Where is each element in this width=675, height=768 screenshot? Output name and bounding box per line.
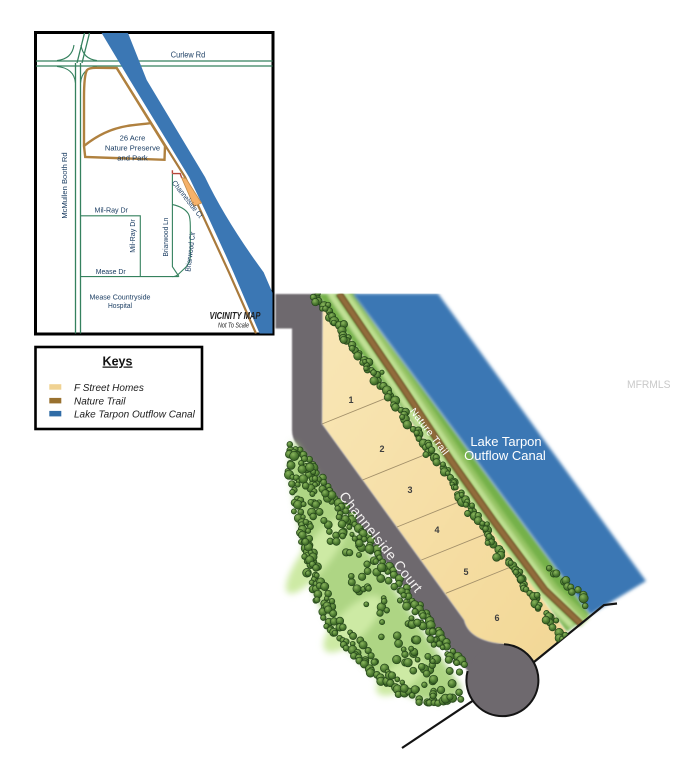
svg-text:MFRMLS: MFRMLS xyxy=(627,379,671,391)
svg-text:Mil-Ray Dr: Mil-Ray Dr xyxy=(95,206,129,215)
svg-text:Lake Tarpon: Lake Tarpon xyxy=(470,434,541,449)
svg-text:Outflow Canal: Outflow Canal xyxy=(464,448,546,463)
svg-text:2: 2 xyxy=(379,444,384,454)
svg-text:1: 1 xyxy=(348,395,353,405)
svg-text:26 Acre: 26 Acre xyxy=(120,134,146,143)
svg-text:Keys: Keys xyxy=(103,355,133,369)
svg-text:VICINITY MAP: VICINITY MAP xyxy=(210,311,261,322)
svg-text:and Park: and Park xyxy=(117,154,148,163)
svg-text:Not To Scale: Not To Scale xyxy=(218,323,249,330)
svg-text:Hospital: Hospital xyxy=(108,301,132,310)
svg-text:Nature Trail: Nature Trail xyxy=(74,397,126,408)
svg-text:McMullen Booth Rd: McMullen Booth Rd xyxy=(60,152,69,218)
svg-text:Curlew Rd: Curlew Rd xyxy=(171,51,206,60)
svg-text:5: 5 xyxy=(463,567,468,577)
svg-text:Nature Preserve: Nature Preserve xyxy=(105,144,160,153)
svg-text:3: 3 xyxy=(407,485,412,495)
svg-text:Mil-Ray Dr: Mil-Ray Dr xyxy=(128,219,137,253)
svg-text:F Street Homes: F Street Homes xyxy=(74,383,144,394)
svg-text:Mease Dr: Mease Dr xyxy=(96,267,126,276)
svg-text:6: 6 xyxy=(494,613,499,623)
svg-text:Briarwood Ln: Briarwood Ln xyxy=(161,218,170,257)
svg-text:4: 4 xyxy=(434,525,439,535)
svg-text:Lake Tarpon Outflow Canal: Lake Tarpon Outflow Canal xyxy=(74,410,196,421)
